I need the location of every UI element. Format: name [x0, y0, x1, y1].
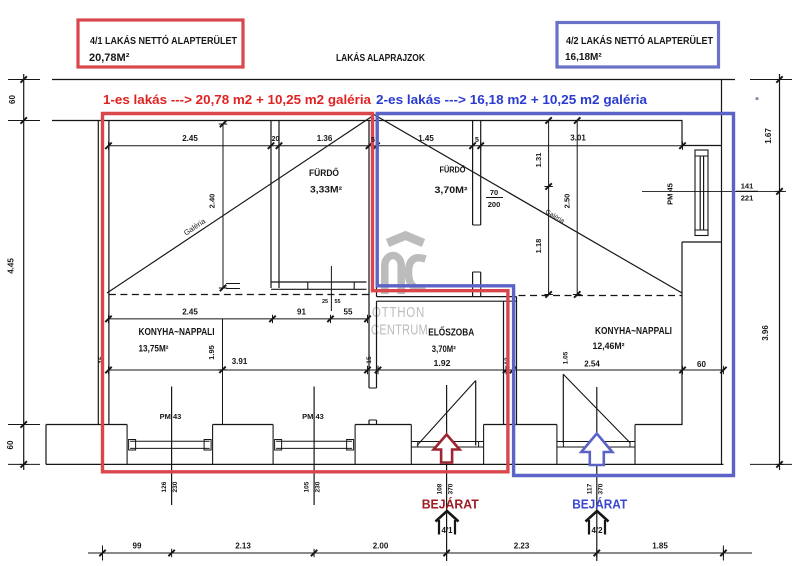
svg-text:4/2 LAKÁS NETTÓ ALAPTERÜLET: 4/2 LAKÁS NETTÓ ALAPTERÜLET — [566, 34, 714, 47]
svg-text:4.45: 4.45 — [7, 258, 16, 274]
svg-text:1.31: 1.31 — [534, 153, 543, 168]
svg-text:108: 108 — [437, 483, 444, 494]
svg-text:370: 370 — [448, 483, 455, 494]
svg-text:99: 99 — [133, 542, 142, 551]
svg-text:70: 70 — [490, 188, 498, 197]
svg-text:1.67: 1.67 — [764, 128, 773, 144]
svg-text:2.45: 2.45 — [182, 308, 198, 317]
svg-text:55: 55 — [344, 308, 353, 317]
svg-text:LAKÁS ALAPRAJZOK: LAKÁS ALAPRAJZOK — [336, 51, 425, 64]
svg-text:55: 55 — [334, 299, 340, 305]
svg-text:3.96: 3.96 — [761, 325, 770, 341]
svg-text:1.85: 1.85 — [652, 542, 668, 551]
svg-text:200: 200 — [488, 200, 501, 209]
svg-text:1-es lakás ---> 20,78 m2 + 10,: 1-es lakás ---> 20,78 m2 + 10,25 m2 galé… — [103, 92, 372, 107]
svg-text:13,75M²: 13,75M² — [139, 344, 169, 354]
svg-text:CENTRUM: CENTRUM — [371, 322, 428, 339]
svg-text:2.40: 2.40 — [208, 194, 217, 209]
svg-text:91: 91 — [297, 308, 306, 317]
svg-text:3,33M²: 3,33M² — [310, 185, 342, 195]
svg-text:4/1 LAKÁS NETTÓ ALAPTERÜLET: 4/1 LAKÁS NETTÓ ALAPTERÜLET — [90, 34, 238, 47]
svg-text:3,70M²: 3,70M² — [432, 344, 456, 354]
svg-text:16,18M²: 16,18M² — [565, 52, 602, 63]
svg-text:FÜRDŐ: FÜRDŐ — [309, 167, 339, 178]
svg-text:1.95: 1.95 — [207, 345, 216, 360]
svg-text:ELŐSZOBA: ELŐSZOBA — [428, 326, 474, 339]
svg-text:3.01: 3.01 — [570, 134, 586, 143]
svg-text:230: 230 — [172, 481, 179, 492]
svg-text:221: 221 — [741, 194, 754, 203]
svg-text:4/2: 4/2 — [591, 526, 603, 535]
svg-text:OTTHON: OTTHON — [372, 304, 425, 321]
svg-text:2.00: 2.00 — [373, 542, 389, 551]
svg-text:3.91: 3.91 — [232, 357, 248, 366]
svg-text:370: 370 — [598, 483, 605, 494]
svg-text:1.36: 1.36 — [317, 134, 333, 143]
svg-text:1.05: 1.05 — [563, 351, 570, 364]
svg-text:25: 25 — [322, 299, 328, 305]
svg-text:5: 5 — [371, 137, 375, 144]
svg-text:2-es lakás ---> 16,18 m2 + 10,: 2-es lakás ---> 16,18 m2 + 10,25 m2 galé… — [376, 92, 648, 107]
svg-text:2.45: 2.45 — [182, 134, 198, 143]
svg-text:141: 141 — [741, 182, 754, 191]
svg-text:20,78M²: 20,78M² — [89, 52, 130, 64]
svg-text:60: 60 — [8, 95, 17, 104]
svg-text:230: 230 — [315, 481, 322, 492]
svg-text:60: 60 — [697, 360, 706, 369]
svg-text:12,46M²: 12,46M² — [593, 341, 625, 351]
svg-text:BEJÁRAT: BEJÁRAT — [422, 497, 479, 512]
svg-text:2.13: 2.13 — [235, 542, 251, 551]
svg-text:KONYHA~NAPPALI: KONYHA~NAPPALI — [595, 326, 672, 337]
svg-text:2.50: 2.50 — [563, 194, 572, 209]
svg-text:5: 5 — [475, 137, 479, 144]
svg-text:PM 43: PM 43 — [160, 412, 182, 421]
svg-text:1.18: 1.18 — [534, 239, 543, 254]
svg-text:KONYHA~NAPPALI: KONYHA~NAPPALI — [139, 327, 215, 338]
svg-text:4/1: 4/1 — [441, 526, 453, 535]
svg-text:3,70M²: 3,70M² — [435, 185, 468, 195]
svg-text:126: 126 — [161, 481, 168, 492]
svg-text:117: 117 — [587, 483, 594, 494]
svg-text:2.23: 2.23 — [514, 542, 530, 551]
svg-text:60: 60 — [6, 440, 15, 449]
svg-text:1.45: 1.45 — [418, 134, 434, 143]
svg-text:2.54: 2.54 — [584, 360, 600, 369]
svg-text:BEJÁRAT: BEJÁRAT — [572, 497, 627, 512]
svg-text:20: 20 — [272, 136, 280, 143]
svg-text:PM 43: PM 43 — [302, 412, 324, 421]
svg-text:15: 15 — [366, 356, 373, 364]
svg-text:PM 45: PM 45 — [666, 183, 675, 205]
svg-text:1.92: 1.92 — [434, 359, 452, 368]
svg-text:105: 105 — [304, 481, 311, 492]
